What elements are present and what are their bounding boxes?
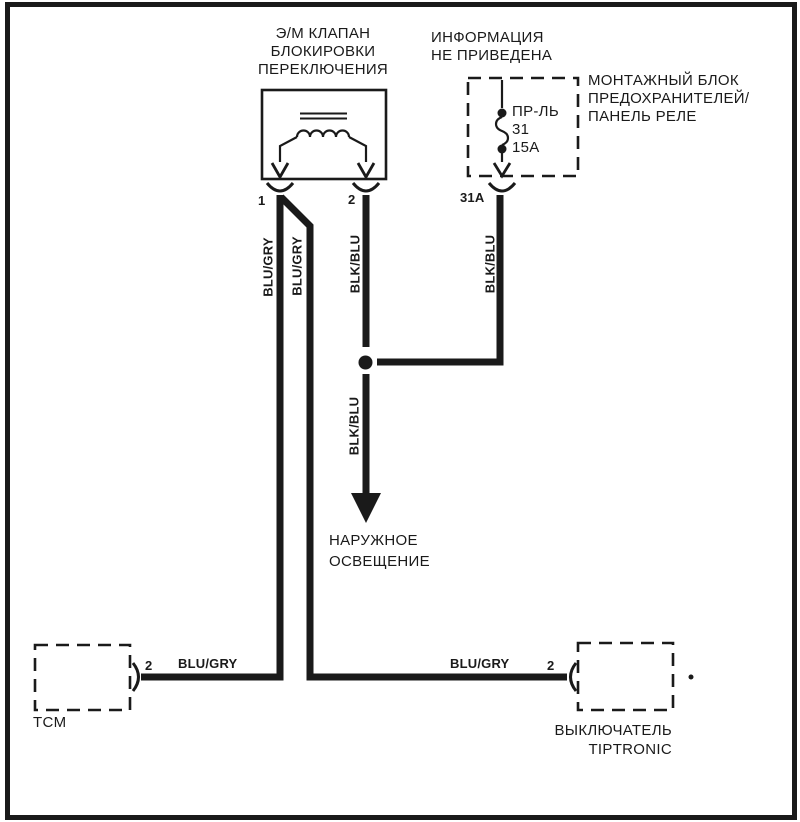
tiptronic-label: ВЫКЛЮЧАТЕЛЬ TIPTRONIC bbox=[500, 721, 672, 759]
wire-label-lighting-feed: BLK/BLU bbox=[347, 397, 362, 455]
solenoid-pin1-label: 1 bbox=[258, 193, 265, 208]
wire-label-fuse-feed: BLK/BLU bbox=[483, 235, 498, 293]
info-note-line: ИНФОРМАЦИЯ bbox=[431, 29, 552, 47]
tcm-box bbox=[35, 645, 130, 710]
wire-label-pin1-branch: BLU/GRY bbox=[290, 236, 305, 295]
lighting-arrowhead-icon bbox=[351, 493, 381, 523]
fuse-panel-name: МОНТАЖНЫЙ БЛОК ПРЕДОХРАНИТЕЛЕЙ/ ПАНЕЛЬ Р… bbox=[588, 72, 749, 126]
solenoid-coil-icon bbox=[297, 131, 349, 138]
wiring-diagram-canvas: Э/М КЛАПАН БЛОКИРОВКИ ПЕРЕКЛЮЧЕНИЯ ИНФОР… bbox=[0, 0, 800, 822]
tcm-connector-icon bbox=[133, 663, 139, 691]
tcm-label: TCM bbox=[33, 714, 66, 732]
fuse-panel-name-line: МОНТАЖНЫЙ БЛОК bbox=[588, 72, 749, 90]
solenoid-pin2-label: 2 bbox=[348, 192, 355, 207]
fuse-panel-name-line: ПРЕДОХРАНИТЕЛЕЙ/ bbox=[588, 90, 749, 108]
tiptronic-box bbox=[578, 643, 673, 710]
wire-label-pin1: BLU/GRY bbox=[261, 237, 276, 296]
solenoid-title-line: БЛОКИРОВКИ bbox=[223, 43, 423, 61]
fuse-output-arrow-icon bbox=[494, 163, 510, 176]
fuse-terminal-dot-top bbox=[498, 109, 507, 118]
fuse-rating-line: 15А bbox=[512, 139, 559, 157]
wire-pin1-branch-to-tiptronic bbox=[281, 197, 567, 677]
exterior-lighting-line: ОСВЕЩЕНИЕ bbox=[329, 551, 430, 572]
solenoid-pin1-connector-icon bbox=[267, 183, 293, 191]
tiptronic-connector-icon bbox=[571, 663, 577, 691]
exterior-lighting-line: НАРУЖНОЕ bbox=[329, 530, 430, 551]
solenoid-title: Э/М КЛАПАН БЛОКИРОВКИ ПЕРЕКЛЮЧЕНИЯ bbox=[223, 25, 423, 79]
fuse-connector-icon bbox=[489, 183, 515, 191]
info-note-line: НЕ ПРИВЕДЕНА bbox=[431, 47, 552, 65]
junction-dot bbox=[359, 356, 373, 370]
solenoid-pin2-connector-icon bbox=[353, 183, 379, 191]
wire-label-tiptronic: BLU/GRY bbox=[450, 656, 509, 671]
solenoid-title-line: ПЕРЕКЛЮЧЕНИЯ bbox=[223, 61, 423, 79]
page-frame-border bbox=[8, 5, 795, 818]
solenoid-core-lines bbox=[300, 114, 347, 119]
fuse-panel-name-line: ПАНЕЛЬ РЕЛЕ bbox=[588, 108, 749, 126]
exterior-lighting-label: НАРУЖНОЕ ОСВЕЩЕНИЕ bbox=[329, 530, 430, 572]
wire-pin1-to-tcm bbox=[141, 195, 280, 677]
info-note: ИНФОРМАЦИЯ НЕ ПРИВЕДЕНА bbox=[431, 29, 552, 65]
fuse-pin-label: 31A bbox=[460, 190, 484, 205]
fuse-rating-line: 31 bbox=[512, 121, 559, 139]
tiptronic-pin-label: 2 bbox=[547, 658, 554, 673]
wire-label-pin2: BLK/BLU bbox=[348, 235, 363, 293]
fuse-rating-line: ПР-ЛЬ bbox=[512, 103, 559, 121]
solenoid-title-line: Э/М КЛАПАН bbox=[223, 25, 423, 43]
solenoid-pin1-arrow-icon bbox=[272, 163, 288, 177]
tiptronic-label-line: ВЫКЛЮЧАТЕЛЬ bbox=[500, 721, 672, 740]
tcm-pin-label: 2 bbox=[145, 658, 152, 673]
solenoid-coil-leads bbox=[280, 137, 366, 162]
stray-dot bbox=[689, 675, 694, 680]
wire-label-tcm: BLU/GRY bbox=[178, 656, 237, 671]
tiptronic-label-line: TIPTRONIC bbox=[500, 740, 672, 759]
fuse-rating-label: ПР-ЛЬ 31 15А bbox=[512, 103, 559, 157]
fuse-element-icon bbox=[496, 117, 508, 145]
solenoid-pin2-arrow-icon bbox=[358, 163, 374, 177]
